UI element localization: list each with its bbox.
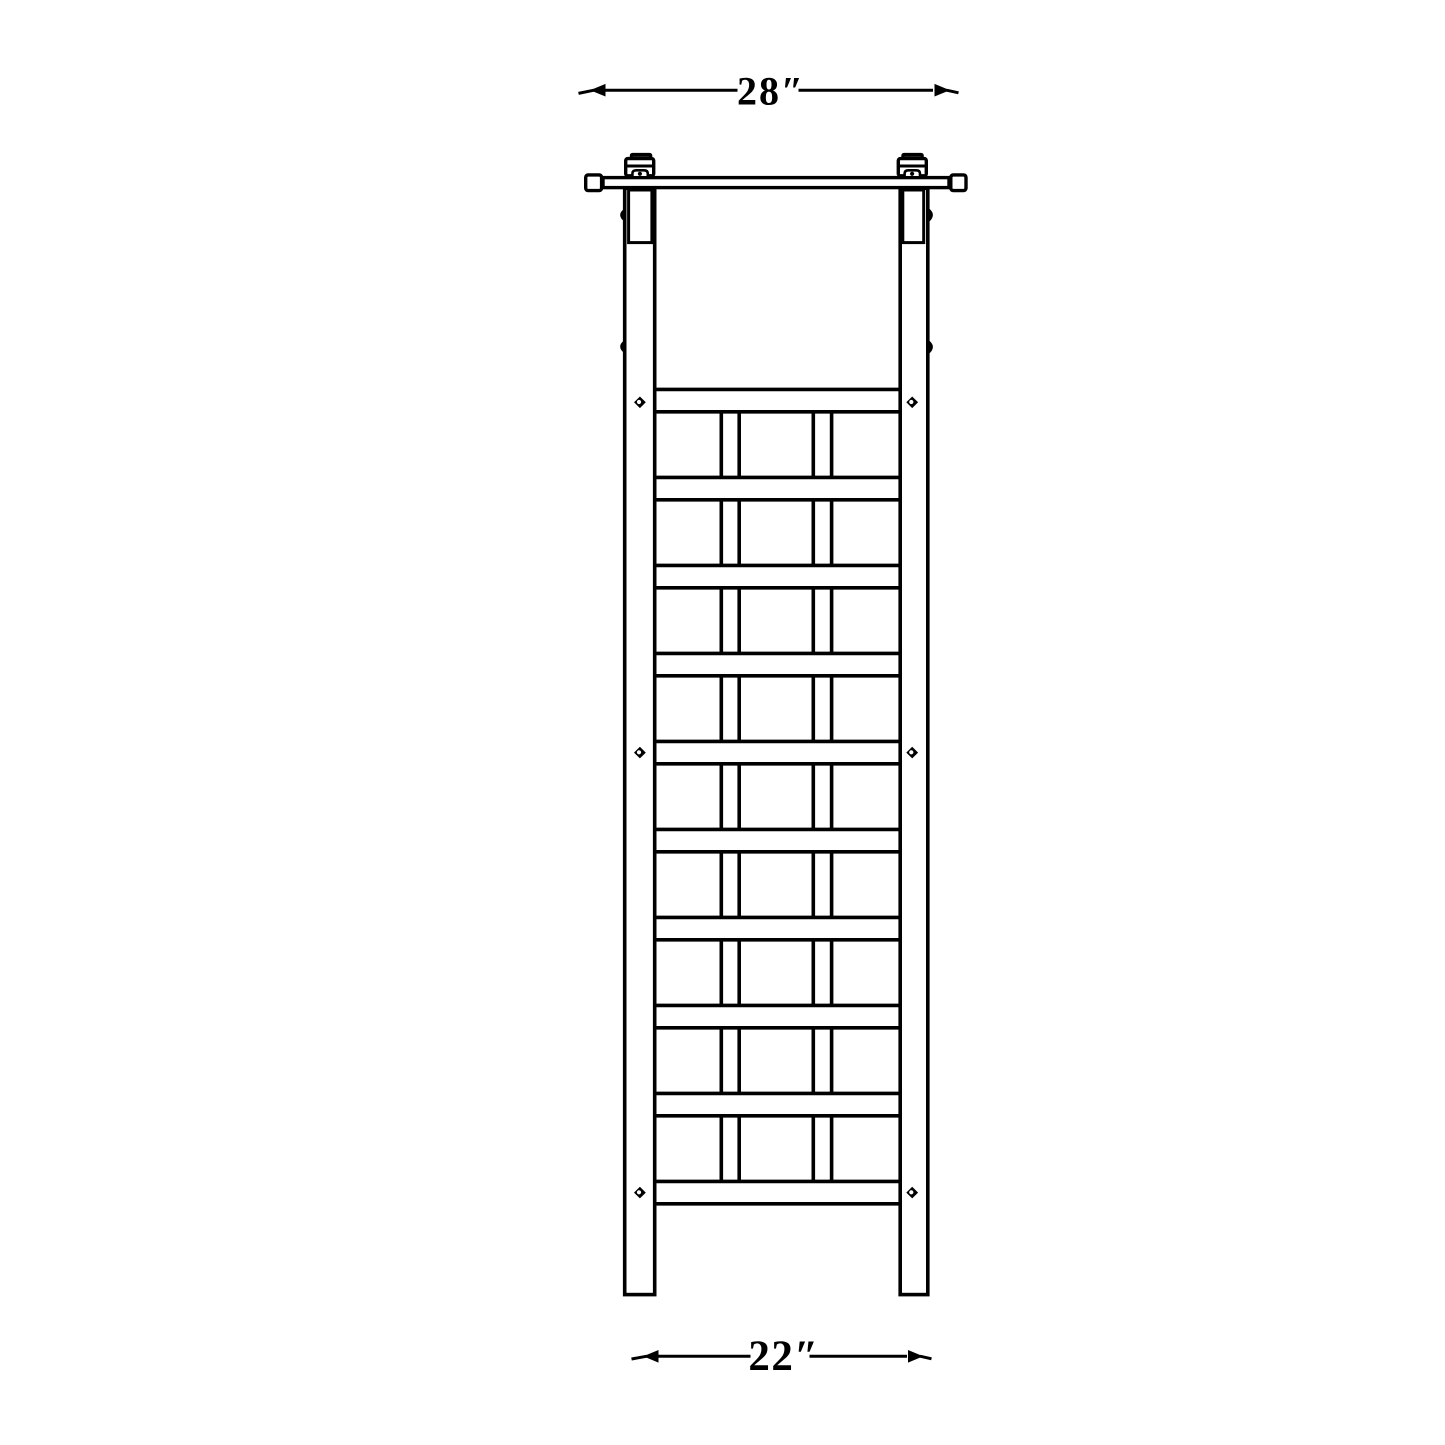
- svg-text:28″: 28″: [737, 69, 805, 114]
- svg-text:22″: 22″: [748, 1333, 819, 1380]
